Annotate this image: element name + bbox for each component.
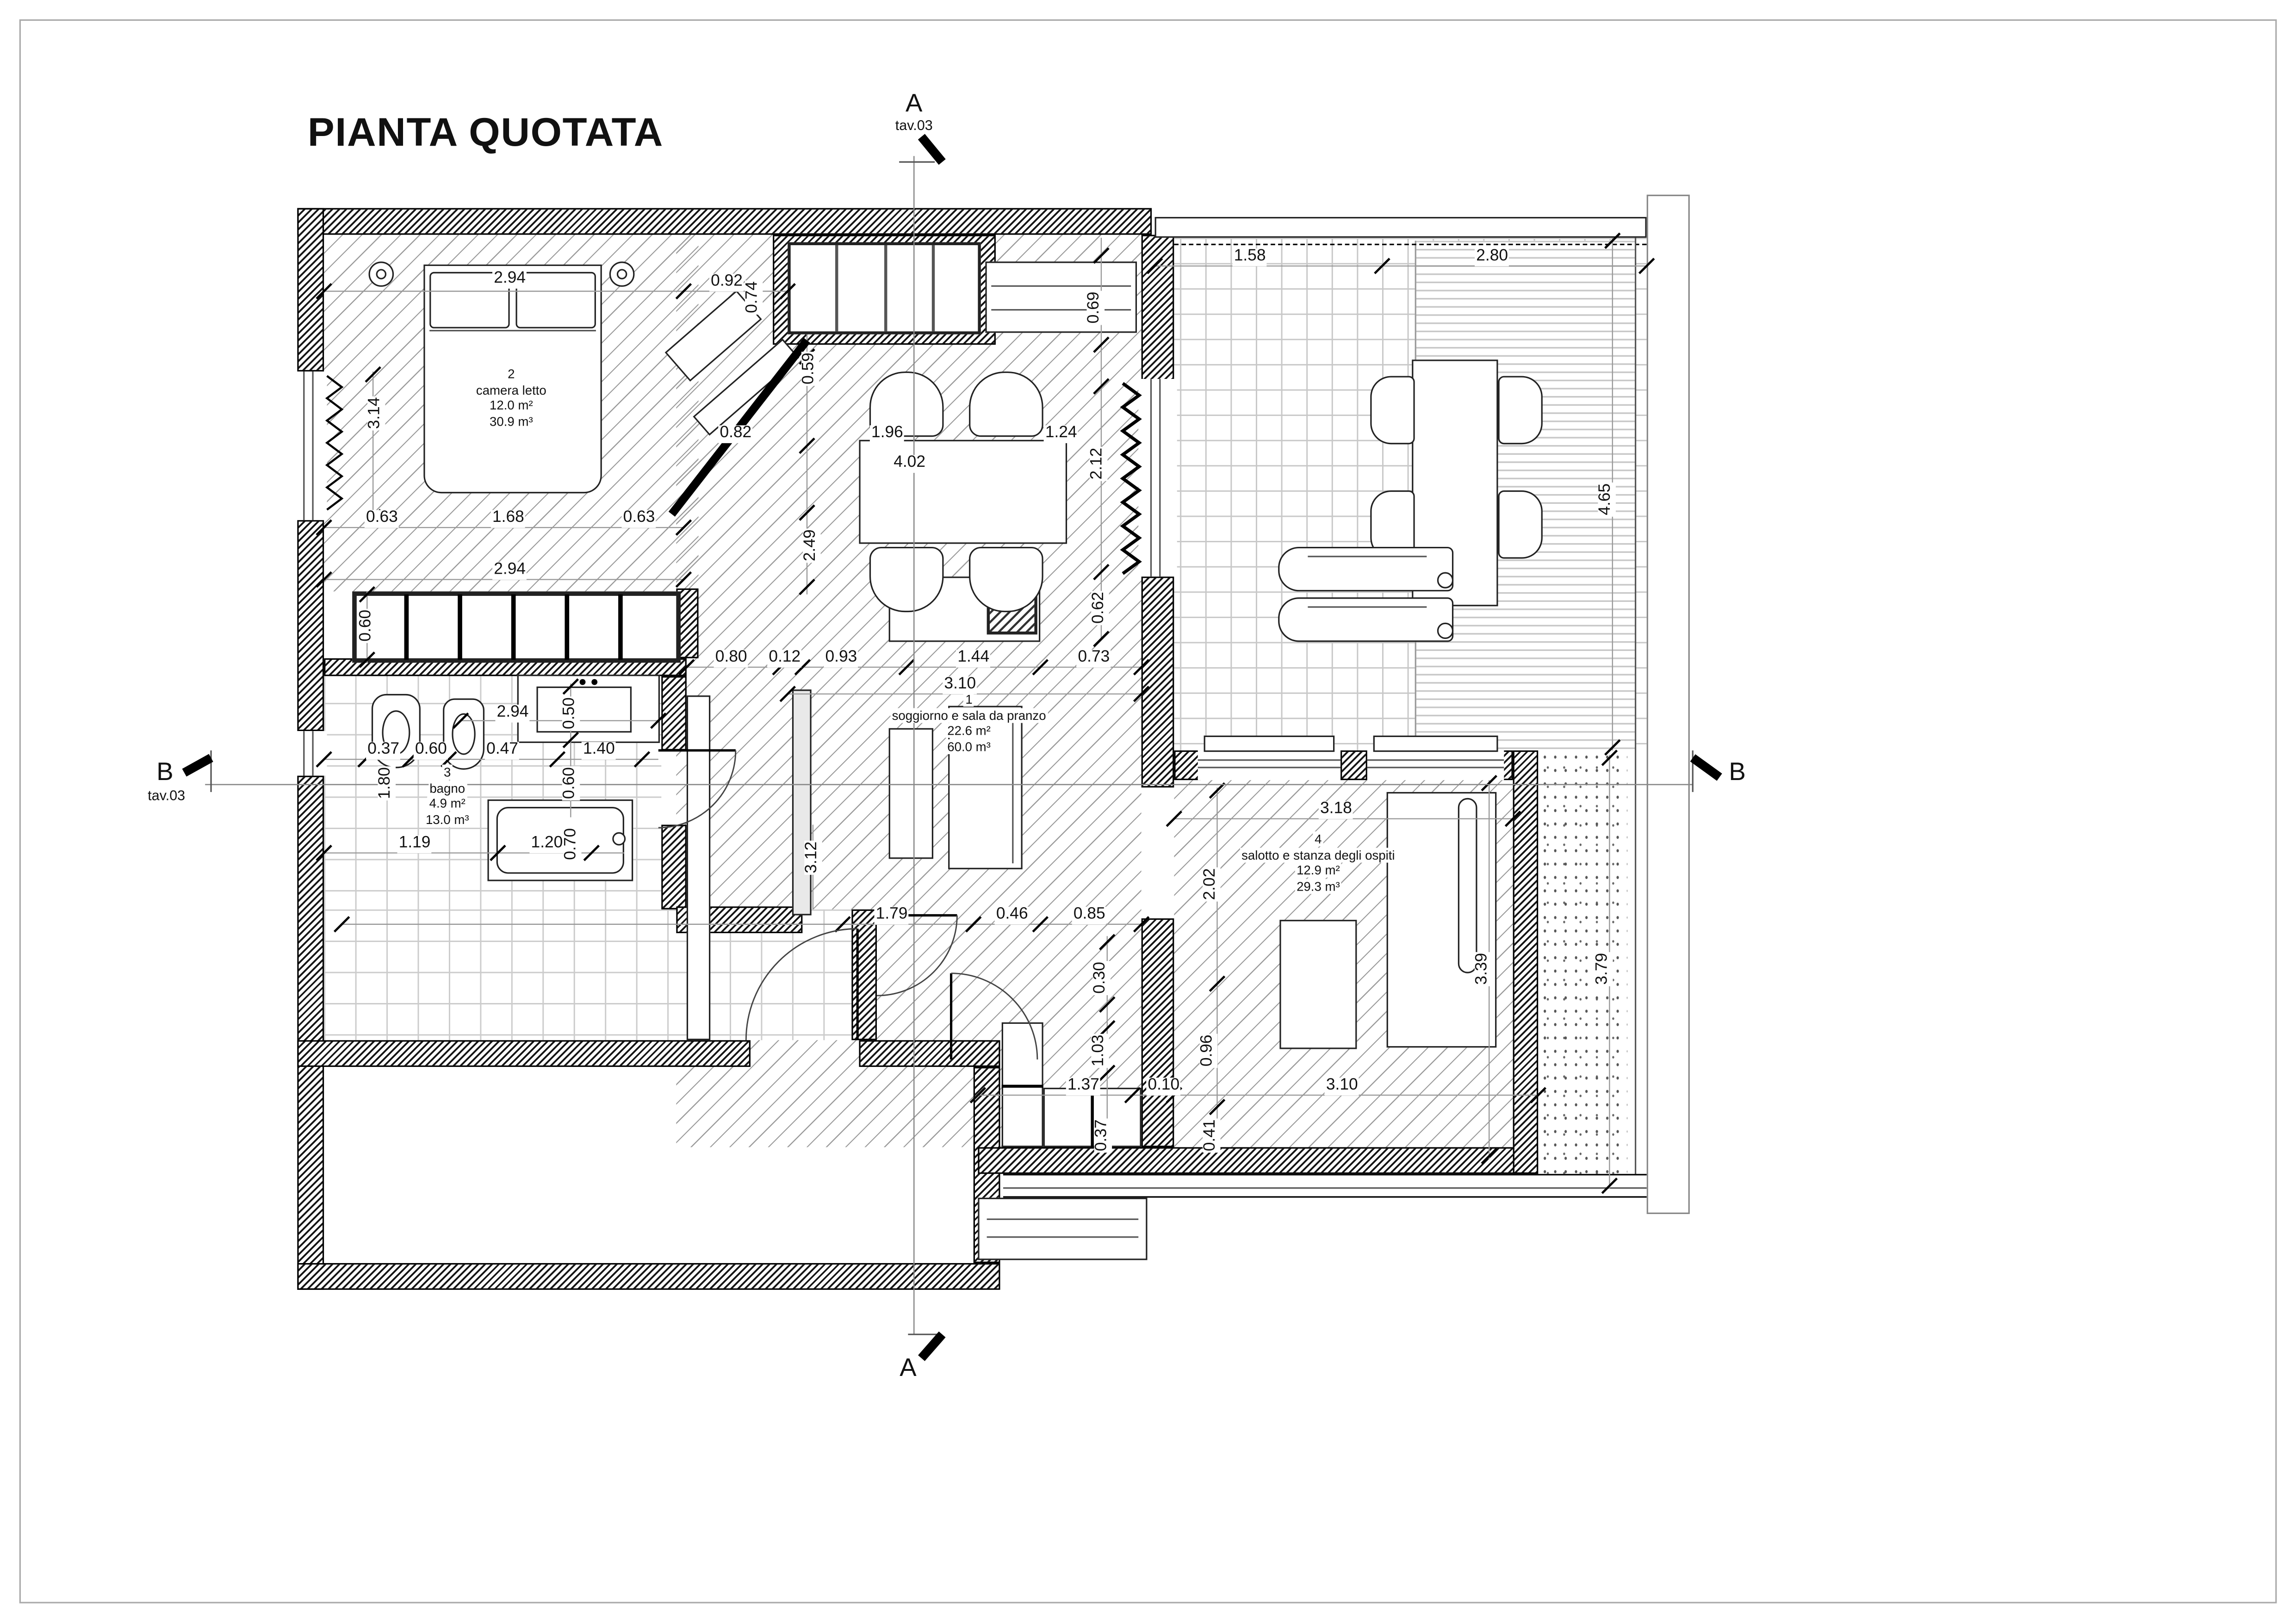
window-line bbox=[1159, 379, 1160, 576]
dimension-label: 3.12 bbox=[804, 840, 821, 875]
dimension-label: 2.80 bbox=[1475, 248, 1509, 266]
bath-window bbox=[294, 731, 327, 775]
dimension-label: 3.39 bbox=[1475, 951, 1492, 986]
window-line bbox=[303, 731, 304, 775]
window-sill bbox=[1373, 736, 1498, 752]
faucet-dot bbox=[591, 679, 597, 685]
dimension-label: 0.70 bbox=[564, 827, 581, 861]
salotto-table bbox=[1279, 920, 1357, 1049]
salotto-window-2 bbox=[1367, 750, 1504, 780]
dimension-label: 1.03 bbox=[1091, 1033, 1108, 1068]
threshold bbox=[1003, 1174, 1647, 1197]
sofa-bolster bbox=[1458, 798, 1477, 973]
room-name: soggiorno e sala da pranzo bbox=[890, 708, 1047, 723]
ceiling-lamp-dot bbox=[617, 269, 627, 279]
outdoor-chair bbox=[1498, 376, 1542, 445]
dining-chair bbox=[969, 372, 1043, 437]
window-line bbox=[1367, 767, 1504, 768]
room-area: 12.9 m² bbox=[1295, 863, 1341, 878]
room-number: 3 bbox=[442, 765, 453, 780]
dimension-label: 0.93 bbox=[824, 650, 858, 667]
bed-line bbox=[429, 330, 596, 331]
section-marker-b-left-ref: tav.03 bbox=[148, 788, 185, 805]
dimension-label: 0.60 bbox=[359, 608, 376, 643]
room-area: 22.6 m² bbox=[946, 724, 992, 738]
dimension-label: 0.50 bbox=[562, 696, 579, 731]
lounger-line bbox=[1308, 556, 1427, 557]
room-label: 3 bagno 4.9 m² 13.0 m³ bbox=[424, 765, 471, 829]
dimension-label: 0.96 bbox=[1200, 1033, 1217, 1068]
dimension-label: 0.82 bbox=[718, 425, 753, 442]
dimension-label: 0.62 bbox=[1091, 590, 1108, 625]
dimension-label: 0.46 bbox=[995, 907, 1030, 924]
wall-salotto-top-2 bbox=[1340, 750, 1367, 780]
bidet-bowl bbox=[452, 713, 475, 755]
salotto-window-1 bbox=[1198, 750, 1340, 780]
room-volume: 29.3 m³ bbox=[1295, 880, 1341, 894]
dimension-label: 1.96 bbox=[870, 425, 905, 442]
porch-step bbox=[987, 1236, 1139, 1238]
ceiling-lamp-dot bbox=[376, 269, 386, 279]
dimension-label: 4.02 bbox=[892, 455, 927, 472]
dimension-label: 0.12 bbox=[767, 650, 802, 667]
dimension-label: 0.37 bbox=[1094, 1118, 1111, 1152]
room-label: 4 salotto e stanza degli ospiti 12.9 m² … bbox=[1240, 831, 1396, 895]
dimension-label: 0.59 bbox=[801, 351, 819, 386]
sideboard-top bbox=[985, 261, 1137, 333]
terrace-glass-door bbox=[1138, 379, 1177, 576]
room-volume: 13.0 m³ bbox=[424, 812, 471, 827]
outdoor-chair bbox=[1370, 376, 1415, 445]
wall-bath-right-1 bbox=[661, 676, 687, 750]
wall-east-2 bbox=[1142, 576, 1174, 787]
porch bbox=[978, 1198, 1147, 1260]
deck-edge-line bbox=[1635, 238, 1636, 1196]
room-number: 2 bbox=[506, 366, 516, 381]
closet-divider bbox=[884, 245, 887, 331]
step-line bbox=[1003, 1187, 1647, 1189]
section-marker-a-top: A bbox=[906, 89, 922, 119]
dimension-label: 3.10 bbox=[943, 676, 977, 694]
pillow bbox=[515, 272, 596, 328]
section-marker-b-left: B bbox=[156, 758, 173, 787]
dimension-label: 1.40 bbox=[582, 742, 616, 759]
dimension-label: 2.02 bbox=[1203, 867, 1220, 901]
dimension-label: 1.58 bbox=[1233, 248, 1267, 266]
dimension-label: 0.41 bbox=[1203, 1118, 1220, 1152]
kitchen-tall-units bbox=[687, 695, 710, 1040]
dimension-label: 2.94 bbox=[495, 705, 530, 722]
dimension-label: 1.37 bbox=[1066, 1078, 1101, 1095]
wall-corridor-right bbox=[851, 910, 877, 1041]
tv-panel bbox=[792, 689, 812, 915]
dimension-label: 3.18 bbox=[1319, 801, 1353, 818]
room-label: 1 soggiorno e sala da pranzo 22.6 m² 60.… bbox=[890, 692, 1047, 756]
roof-dashed-line bbox=[1174, 244, 1646, 245]
washbasin bbox=[536, 687, 632, 733]
dimension-label: 2.12 bbox=[1090, 446, 1107, 481]
guest-sofa-bed bbox=[1387, 792, 1497, 1047]
wall-south bbox=[978, 1147, 1538, 1174]
dimension-label: 1.24 bbox=[1044, 425, 1079, 442]
floor-plan: 2.940.920.740.591.961.244.020.692.123.14… bbox=[0, 0, 2296, 1623]
window-line bbox=[1367, 759, 1504, 761]
wall-left-1 bbox=[297, 208, 324, 372]
dimension-label: 0.73 bbox=[1076, 650, 1111, 667]
wardrobe-divider bbox=[565, 595, 569, 660]
dimension-label: 0.10 bbox=[1146, 1078, 1181, 1095]
wall-bath-right-2 bbox=[661, 825, 687, 910]
dimension-label: 2.49 bbox=[803, 528, 820, 563]
wall-east-1 bbox=[1142, 235, 1174, 383]
wardrobe bbox=[352, 591, 681, 663]
tub-drain bbox=[612, 832, 626, 846]
wall-salotto-top-1 bbox=[1174, 750, 1201, 780]
dimension-label: 0.63 bbox=[621, 510, 656, 527]
sideboard-line bbox=[991, 309, 1131, 310]
window-line bbox=[1198, 767, 1340, 768]
dimension-label: 1.20 bbox=[529, 836, 564, 853]
dimension-label: 1.44 bbox=[956, 650, 991, 667]
dimension-label: 1.80 bbox=[378, 766, 395, 800]
wall-top bbox=[297, 208, 1152, 235]
wall-salotto-right bbox=[1513, 750, 1539, 1174]
room-name: camera letto bbox=[475, 382, 548, 397]
room-name: salotto e stanza degli ospiti bbox=[1240, 848, 1396, 862]
window-line bbox=[312, 731, 313, 775]
dimension-label: 2.94 bbox=[492, 271, 527, 288]
dimension-label: 0.69 bbox=[1087, 290, 1104, 325]
dining-chair bbox=[869, 547, 944, 612]
dining-table bbox=[859, 440, 1067, 544]
sideboard-line bbox=[991, 285, 1131, 287]
section-marker-a-top-ref: tav.03 bbox=[895, 118, 933, 134]
room-name: bagno bbox=[428, 781, 466, 795]
room-volume: 60.0 m³ bbox=[946, 740, 992, 755]
dimension-label: 0.92 bbox=[709, 274, 744, 291]
dimension-label: 0.74 bbox=[745, 280, 762, 315]
cabinet-divider bbox=[1002, 1085, 1043, 1088]
wall-patio-bottom bbox=[297, 1263, 1000, 1290]
wall-left-3 bbox=[297, 776, 324, 1290]
window-line bbox=[312, 372, 313, 520]
sun-lounger bbox=[1278, 597, 1453, 642]
dimension-label: 0.80 bbox=[714, 650, 749, 667]
dimension-label: 3.79 bbox=[1595, 951, 1612, 986]
dining-chair bbox=[969, 547, 1043, 612]
wardrobe-divider bbox=[511, 595, 516, 660]
dimension-label: 0.60 bbox=[562, 766, 579, 800]
section-marker-b-right: B bbox=[1729, 758, 1745, 787]
lounger-wheel bbox=[1437, 623, 1453, 639]
dimension-label: 3.10 bbox=[1325, 1078, 1359, 1095]
room-number: 1 bbox=[964, 692, 974, 706]
lounger-wheel bbox=[1437, 572, 1453, 588]
dimension-label: 0.30 bbox=[1092, 960, 1110, 995]
closet-divider bbox=[835, 245, 838, 331]
lounger-line bbox=[1308, 606, 1427, 607]
wardrobe-divider bbox=[618, 595, 623, 660]
wall-corridor-bottom-1 bbox=[297, 1040, 751, 1067]
drawing-sheet: PIANTA QUOTATA 2.940.920.740.591.961.244… bbox=[0, 0, 2296, 1623]
roof-edge-band bbox=[1647, 195, 1690, 1214]
dimension-label: 0.63 bbox=[365, 510, 399, 527]
dimension-label: 1.68 bbox=[491, 510, 526, 527]
room-area: 4.9 m² bbox=[428, 797, 467, 811]
dimension-label: 1.79 bbox=[874, 907, 909, 924]
wardrobe-divider bbox=[458, 595, 462, 660]
porch-step bbox=[987, 1219, 1139, 1220]
salotto-passage bbox=[1142, 787, 1174, 918]
sun-lounger bbox=[1278, 547, 1453, 591]
wall-corridor-bottom-2 bbox=[859, 1040, 1000, 1067]
window-line bbox=[303, 372, 304, 520]
faucet-dot bbox=[580, 679, 586, 685]
dimension-label: 0.37 bbox=[366, 742, 401, 759]
closet-divider bbox=[932, 245, 934, 331]
dimension-label: 3.14 bbox=[367, 396, 385, 430]
section-marker-a-bottom: A bbox=[900, 1354, 916, 1383]
dimension-label: 0.60 bbox=[414, 742, 448, 759]
dimension-label: 2.94 bbox=[492, 562, 527, 579]
room-volume: 30.9 m³ bbox=[488, 414, 534, 429]
dimension-label: 0.85 bbox=[1072, 907, 1107, 924]
bedroom-window bbox=[294, 372, 327, 520]
wardrobe-divider bbox=[404, 595, 409, 660]
dimension-label: 1.19 bbox=[397, 836, 432, 853]
outdoor-chair bbox=[1498, 490, 1542, 559]
room-label: 2 camera letto 12.0 m² 30.9 m³ bbox=[475, 366, 548, 430]
room-number: 4 bbox=[1313, 831, 1323, 846]
dimension-label: 4.65 bbox=[1598, 482, 1615, 517]
dimension-label: 0.47 bbox=[485, 742, 520, 759]
wall-left-2 bbox=[297, 520, 324, 731]
window-line bbox=[1198, 759, 1340, 761]
room-area: 12.0 m² bbox=[488, 398, 534, 413]
window-sill bbox=[1204, 736, 1335, 752]
wall-east-3 bbox=[1142, 918, 1174, 1147]
terrace-beam bbox=[1155, 217, 1647, 238]
window-line bbox=[1150, 379, 1152, 576]
